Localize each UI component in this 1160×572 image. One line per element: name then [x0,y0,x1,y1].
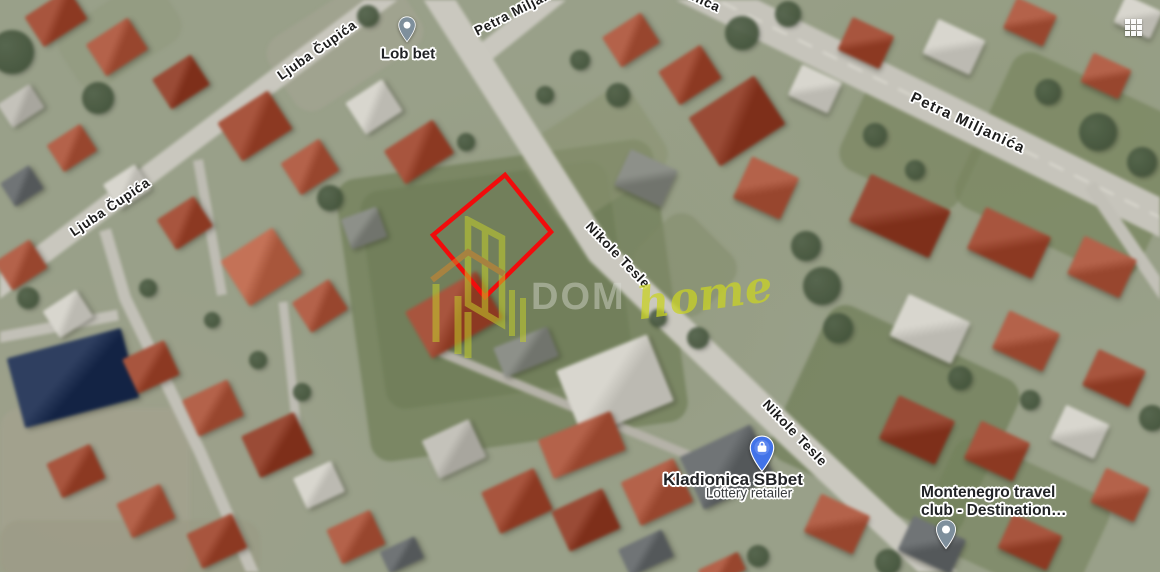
montenegro-label-line1: Montenegro travel [921,484,1067,502]
tree [82,82,114,114]
tree [803,267,841,305]
montenegro-pin-icon[interactable] [935,519,957,550]
tree [875,549,901,572]
tree [606,83,630,107]
tree [649,309,667,327]
tree [1020,390,1040,410]
tree [17,287,39,309]
tree [905,160,925,180]
kladionica-pin-icon[interactable] [749,435,776,473]
montenegro-label[interactable]: Montenegro travel club - Destination… [921,484,1067,519]
tree [747,545,769,567]
tree [1127,147,1157,177]
tree [570,50,590,70]
grid-dots-icon [1125,19,1142,36]
tree [1079,113,1117,151]
tree [139,279,157,297]
tree [293,383,311,401]
tree [948,366,972,390]
tree [823,313,853,343]
tree [249,351,267,369]
tree [1139,405,1160,431]
tree [863,123,887,147]
tree [317,185,343,211]
tree [791,231,821,261]
tree [725,16,759,50]
lob-bet-pin-icon[interactable] [398,16,417,43]
road-segment [478,0,585,58]
tree [204,312,220,328]
briefcase-icon-body [758,446,767,452]
tree [775,1,801,27]
kladionica-subtitle[interactable]: Lottery retailer [706,486,792,501]
tree [687,327,709,349]
lob-bet-label[interactable]: Lob bet [381,46,435,63]
satellite-map[interactable]: Petra Miljanića Petra Miljanića Ljuba Ču… [0,0,1160,572]
montenegro-label-line2: club - Destination… [921,502,1067,520]
tree [536,86,554,104]
tree [357,5,379,27]
tree [457,133,475,151]
tree [1035,79,1061,105]
